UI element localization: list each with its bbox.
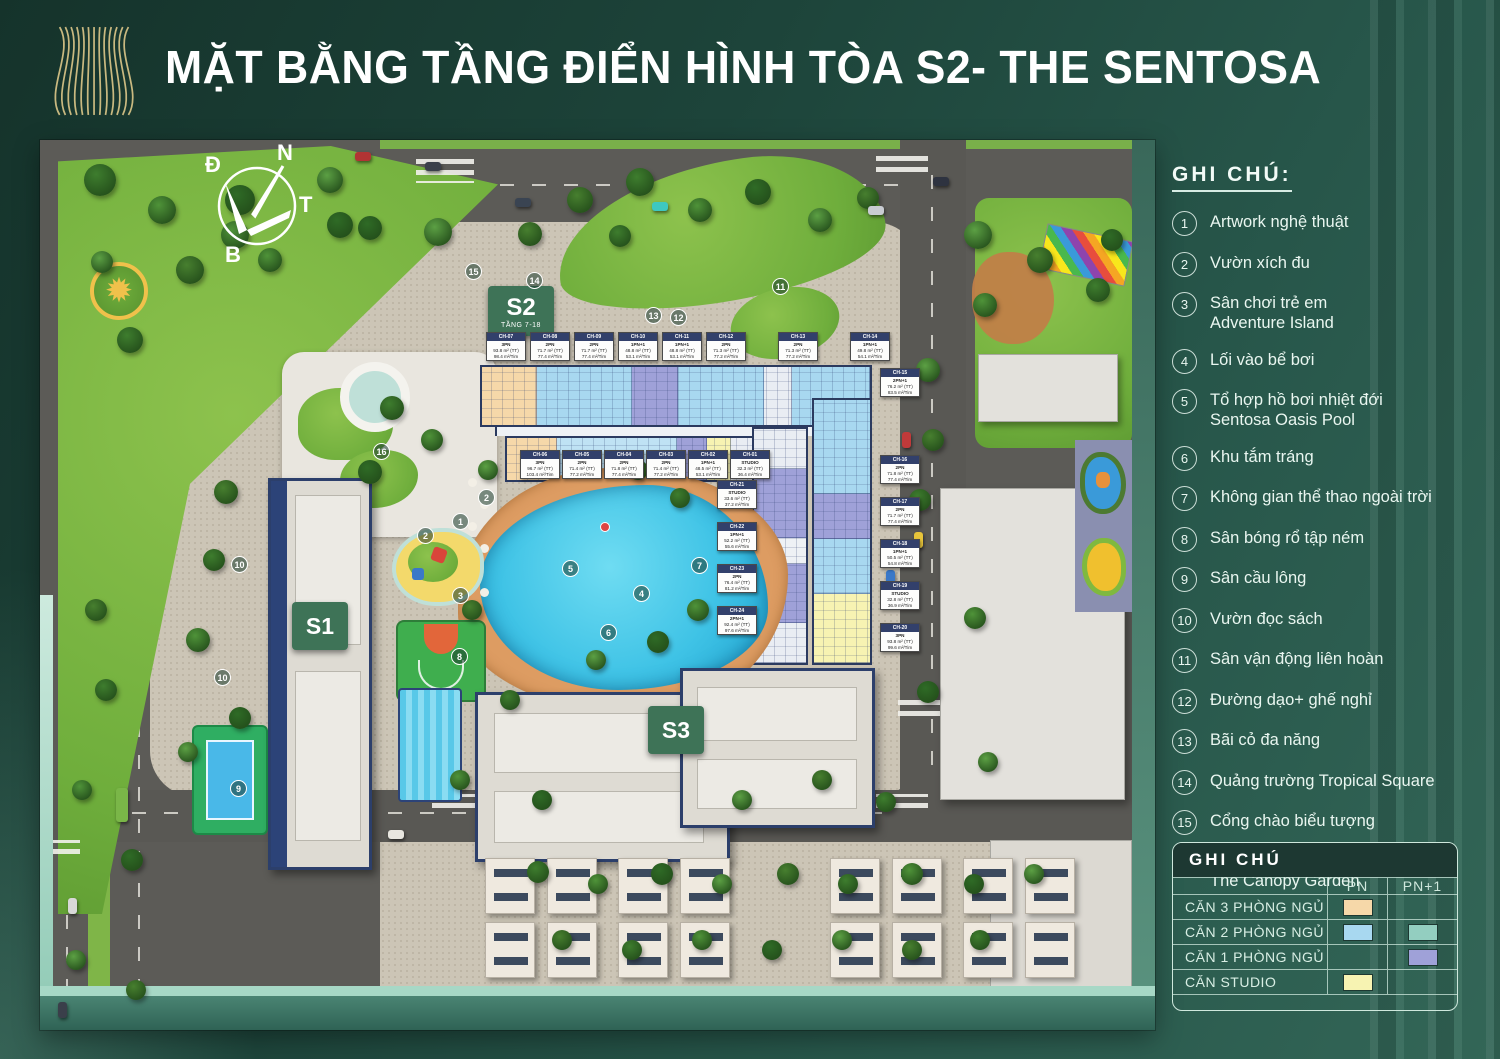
unit-card-area2: 37.2 m²/Tim [718,502,756,508]
unit-card-id: CH-24 [718,607,756,615]
tree-icon [424,218,452,246]
villa-roofline [556,957,590,965]
villa-roofline [1034,957,1068,965]
unit-card-id: CH-23 [718,565,756,573]
map-marker-5: 5 [562,560,579,577]
villa-roofline [1034,893,1068,901]
tree-icon [421,429,443,451]
unit-card-CH-05: CH-05 2PN 71.4 m² (TT) 77.2 m²/Tim [562,450,602,479]
map-marker-14: 14 [526,272,543,289]
top-grass-verge [380,140,1132,149]
villa-roofline [494,893,528,901]
villa-roofline [556,893,590,901]
legend-label: Vườn xích đu [1210,251,1310,274]
unit-card-CH-01: CH-01 STUDIO 32.3 m² (TT) 36.4 m²/Tim [730,450,770,479]
unit-card-type: 3PN [521,459,559,466]
tree-icon [917,681,939,703]
unit-card-area2: 54.1 m²/Tim [851,354,889,360]
legend-number: 7 [1172,486,1197,511]
legend-number: 2 [1172,252,1197,277]
map-marker-8: 8 [451,648,468,665]
parasol [480,588,489,597]
pn-cell [1327,920,1387,944]
unit-card-area2: 36.9 m²/Tim [881,603,919,609]
crosswalk [876,156,928,172]
map-marker-11: 11 [772,278,789,295]
unit-strip [814,400,870,494]
villa-roofline [972,893,1006,901]
unit-type-table: GHI CHÚ PN PN+1CĂN 3 PHÒNG NGỦCĂN 2 PHÒN… [1172,842,1458,1011]
unit-card-CH-20: CH-20 3PN 93.8 m² (TT) 99.6 m²/Tim [880,623,920,652]
legend-number: 1 [1172,211,1197,236]
compass-letter: T [299,192,312,218]
parasol [468,478,477,487]
unit-card-id: CH-10 [619,333,657,341]
unit-card-area2: 77.2 m²/Tim [563,472,601,478]
unit-card-id: CH-02 [689,451,727,459]
unit-strip [814,594,870,663]
legend-items: 1Artwork nghệ thuật2Vườn xích đu3Sân chơ… [1172,210,1472,892]
legend-item-15: 15Cổng chào biểu tượng [1172,809,1472,835]
car-icon [652,202,668,211]
map-marker-10: 10 [214,669,231,686]
unit-card-id: CH-17 [881,498,919,506]
car-icon [515,198,531,207]
tree-icon [214,480,238,504]
s1-roof [295,671,361,841]
villa-roofline [556,869,590,877]
map-marker-2: 2 [478,489,495,506]
tree-icon [500,690,520,710]
tree-icon [358,216,382,240]
car-icon [868,206,884,215]
legend-label: Sân cầu lông [1210,566,1306,589]
tree-icon [622,940,642,960]
pn-cell [1327,945,1387,969]
unit-card-area2: 83.5 m²/Tim [881,390,919,396]
unit-table-title: GHI CHÚ [1173,843,1457,877]
tree-icon [626,168,654,196]
villa [547,922,597,978]
badge-label: S2 [506,294,535,322]
unit-card-area2: 77.4 m²/Tim [605,472,643,478]
legend-label: Tổ hợp hồ bơi nhiệt đớiSentosa Oasis Poo… [1210,388,1383,430]
poster-canvas: MẶT BẰNG TẦNG ĐIỂN HÌNH TÒA S2- THE SENT… [0,0,1500,1059]
unit-card-CH-09: CH-09 2PN 71.7 m² (TT) 77.4 m²/Tim [574,332,614,361]
unit-card-id: CH-08 [531,333,569,341]
unit-card-type: 1PN+1 [619,341,657,348]
s3-building-east [680,668,875,828]
legend-number: 15 [1172,810,1197,835]
tree-icon [95,679,117,701]
compass-letter: N [277,140,293,166]
legend-item-11: 11Sân vận động liên hoàn [1172,647,1472,673]
unit-card-id: CH-07 [487,333,525,341]
tree-icon [186,628,210,652]
unit-card-area2: 99.6 m²/Tim [881,645,919,651]
legend-heading: GHI CHÚ: [1172,163,1292,192]
tree-icon [380,396,404,420]
tree-icon [745,179,771,205]
villa-roofline [494,869,528,877]
unit-card-type: 3PN [881,632,919,639]
s3-roof [697,759,857,809]
legend-label: Bãi cỏ đa năng [1210,728,1320,751]
color-swatch [1408,949,1438,966]
tree-icon [518,222,542,246]
unit-card-CH-16: CH-16 2PN 71.8 m² (TT) 77.4 m²/Tim [880,455,920,484]
tree-icon [762,940,782,960]
site-plan-map: ✹ NĐTBS2TẦNG 7-18S1S31223456789101011121… [40,140,1155,1030]
villa-roofline [901,933,935,941]
building-badge-s1: S1 [292,602,348,650]
unit-card-id: CH-16 [881,456,919,464]
tree-icon [732,790,752,810]
unit-card-id: CH-04 [605,451,643,459]
badge-label: S3 [662,717,690,744]
legend-number: 12 [1172,689,1197,714]
legend-item-13: 13Bãi cỏ đa năng [1172,728,1472,754]
unit-table-row: CĂN STUDIO [1173,969,1457,994]
tree-icon [964,221,992,249]
villa-roofline [494,933,528,941]
unit-card-type: 2PN [605,459,643,466]
page-title: MẶT BẰNG TẦNG ĐIỂN HÌNH TÒA S2- THE SENT… [165,40,1378,94]
legend-number: 3 [1172,292,1197,317]
tree-icon [651,863,673,885]
unit-card-type: 2PN [531,341,569,348]
east-playground-blob [1082,538,1126,596]
car-icon [355,152,371,161]
unit-card-area2: 77.4 m²/Tim [881,477,919,483]
tree-icon [148,196,176,224]
tree-icon [203,549,225,571]
unit-card-CH-24: CH-24 2PN+1 92.4 m² (TT) 97.6 m²/Tim [717,606,757,635]
tree-icon [229,707,251,729]
tree-icon [126,980,146,1000]
unit-card-CH-13: CH-13 2PN 71.3 m² (TT) 77.2 m²/Tim [778,332,818,361]
legend-number: 13 [1172,729,1197,754]
unit-card-id: CH-09 [575,333,613,341]
legend-item-12: 12Đường dạo+ ghế nghỉ [1172,688,1472,714]
tree-icon [532,790,552,810]
car-icon [902,432,911,448]
badge-sub-label: TẦNG 7-18 [501,322,541,329]
tree-icon [91,251,113,273]
tree-icon [358,460,382,484]
legend-item-6: 6Khu tắm tráng [1172,445,1472,471]
unit-card-id: CH-22 [718,523,756,531]
tree-icon [117,327,143,353]
tree-icon [527,861,549,883]
unit-card-area2: 54.8 m²/Tim [881,561,919,567]
tree-icon [832,930,852,950]
villa-roofline [494,957,528,965]
unit-strip [814,494,870,539]
legend-number: 4 [1172,349,1197,374]
unit-card-area2: 77.4 m²/Tim [881,519,919,525]
villa-roofline [901,893,935,901]
tree-icon [84,164,116,196]
unit-card-type: 2PN [779,341,817,348]
villa-roofline [1034,933,1068,941]
legend-number: 8 [1172,527,1197,552]
map-marker-2: 2 [417,527,434,544]
legend-item-4: 4Lối vào bể bơi [1172,348,1472,374]
tree-icon [838,874,858,894]
tree-icon [478,460,498,480]
color-swatch [1343,974,1373,991]
unit-card-type: STUDIO [718,489,756,496]
col-header-pn1: PN+1 [1387,878,1457,894]
unit-card-CH-19: CH-19 STUDIO 32.8 m² (TT) 36.9 m²/Tim [880,581,920,610]
unit-strip [814,539,870,594]
tree-icon [647,631,669,653]
legend-label: Đường dạo+ ghế nghỉ [1210,688,1372,711]
legend-label: Artwork nghệ thuật [1210,210,1349,233]
unit-card-area2: 77.2 m²/Tim [707,354,745,360]
unit-card-area2: 97.6 m²/Tim [718,628,756,634]
tree-icon [964,607,986,629]
legend-item-7: 7Không gian thể thao ngoài trời [1172,485,1472,511]
tree-icon [978,752,998,772]
tree-icon [552,930,572,950]
tree-icon [66,950,86,970]
pn1-cell [1387,945,1457,969]
unit-card-area2: 53.1 m²/Tim [663,354,701,360]
pn1-cell [1387,895,1457,919]
unit-card-id: CH-11 [663,333,701,341]
legend-item-1: 1Artwork nghệ thuật [1172,210,1472,236]
map-marker-7: 7 [691,557,708,574]
unit-card-CH-06: CH-06 3PN 96.7 m² (TT) 103.4 m²/Tim [520,450,560,479]
legend-item-14: 14Quảng trường Tropical Square [1172,769,1472,795]
legend-number: 10 [1172,608,1197,633]
tree-icon [812,770,832,790]
car-icon [58,1002,67,1018]
car-icon [388,830,404,839]
parasol [468,522,477,531]
unit-card-area2: 103.4 m²/Tim [521,472,559,478]
unit-card-area2: 77.4 m²/Tim [575,354,613,360]
tree-icon [692,930,712,950]
tree-icon [1027,247,1053,273]
tree-icon [1101,229,1123,251]
unit-card-id: CH-05 [563,451,601,459]
unit-card-id: CH-21 [718,481,756,489]
legend-label: Sân vận động liên hoàn [1210,647,1383,670]
tree-icon [121,849,143,871]
unit-card-type: 3PN [487,341,525,348]
unit-card-CH-04: CH-04 2PN 71.8 m² (TT) 77.4 m²/Tim [604,450,644,479]
legend-panel: GHI CHÚ: 1Artwork nghệ thuật2Vườn xích đ… [1172,163,1472,906]
map-marker-10: 10 [231,556,248,573]
pn1-cell [1387,970,1457,994]
unit-card-area2: 36.4 m²/Tim [731,472,769,478]
s1-building [268,478,372,870]
car-icon [425,162,441,171]
unit-card-id: CH-15 [881,369,919,377]
villa-roofline [627,893,661,901]
tree-icon [588,874,608,894]
map-marker-12: 12 [670,309,687,326]
unit-card-id: CH-06 [521,451,559,459]
map-marker-6: 6 [600,624,617,641]
unit-card-area2: 55.6 m²/Tim [718,544,756,550]
unit-card-id: CH-18 [881,540,919,548]
unit-strip [764,367,792,425]
legend-number: 5 [1172,389,1197,414]
unit-card-area2: 77.4 m²/Tim [531,354,569,360]
tree-icon [586,650,606,670]
unit-card-id: CH-12 [707,333,745,341]
legend-label: Không gian thể thao ngoài trời [1210,485,1432,508]
villa-roofline [689,893,723,901]
unit-card-type: 2PN [647,459,685,466]
villa-roofline [839,957,873,965]
color-swatch [1343,899,1373,916]
unit-card-CH-07: CH-07 3PN 93.8 m² (TT) 98.4 m²/Tim [486,332,526,361]
tree-icon [973,293,997,317]
tree-icon [712,874,732,894]
legend-label: Lối vào bể bơi [1210,348,1314,371]
compass-letter: B [225,242,241,268]
unit-card-id: CH-03 [647,451,685,459]
unit-card-type: 1PN+1 [718,531,756,538]
car-icon [933,177,949,186]
unit-card-area2: 81.2 m²/Tim [718,586,756,592]
unit-card-area2: 53.1 m²/Tim [619,354,657,360]
unit-card-CH-03: CH-03 2PN 71.4 m² (TT) 77.2 m²/Tim [646,450,686,479]
unit-card-type: 2PN [881,506,919,513]
brand-logo-icon [52,22,138,120]
unit-card-type: 2PN [575,341,613,348]
unit-strip [482,367,537,425]
unit-table-row: CĂN 3 PHÒNG NGỦ [1173,894,1457,919]
s1-edge [271,481,287,867]
play-equipment [412,568,424,580]
legend-number: 9 [1172,567,1197,592]
pn-cell [1327,895,1387,919]
pn-cell [1327,970,1387,994]
unit-card-id: CH-20 [881,624,919,632]
color-swatch [1343,924,1373,941]
map-south-border-light [40,986,1155,996]
tree-icon [902,940,922,960]
unit-table-row: CĂN 2 PHÒNG NGỦ [1173,919,1457,944]
unit-card-CH-15: CH-15 2PN+1 76.2 m² (TT) 83.5 m²/Tim [880,368,920,397]
unit-type-label: CĂN 1 PHÒNG NGỦ [1173,945,1327,969]
compass-letter: Đ [205,152,221,178]
map-marker-4: 4 [633,585,650,602]
villa [485,922,535,978]
map-south-border [40,996,1155,1030]
s3-roof [697,687,857,741]
east-road-dashes [931,165,933,765]
unit-card-type: STUDIO [881,590,919,597]
unit-card-CH-10: CH-10 1PN+1 48.8 m² (TT) 53.1 m²/Tim [618,332,658,361]
unit-type-label: CĂN 2 PHÒNG NGỦ [1173,920,1327,944]
badge-label: S1 [306,613,334,640]
unit-card-CH-02: CH-02 1PN+1 48.5 m² (TT) 53.1 m²/Tim [688,450,728,479]
legend-number: 14 [1172,770,1197,795]
unit-card-CH-23: CH-23 2PN 76.4 m² (TT) 81.2 m²/Tim [717,564,757,593]
unit-card-CH-17: CH-17 2PN 71.7 m² (TT) 77.4 m²/Tim [880,497,920,526]
tree-icon [462,600,482,620]
map-marker-1: 1 [452,513,469,530]
unit-card-type: 2PN [718,573,756,580]
map-marker-16: 16 [373,443,390,460]
map-west-border [40,595,53,1030]
unit-card-type: 1PN+1 [689,459,727,466]
pn1-cell [1387,920,1457,944]
map-marker-9: 9 [230,780,247,797]
east-playground-dot [1096,472,1110,488]
unit-card-CH-14: CH-14 1PN+1 49.8 m² (TT) 54.1 m²/Tim [850,332,890,361]
car-icon [116,788,128,822]
unit-type-label: CĂN STUDIO [1173,970,1327,994]
tree-icon [609,225,631,247]
unit-card-CH-08: CH-08 2PN 71.7 m² (TT) 77.4 m²/Tim [530,332,570,361]
unit-card-CH-12: CH-12 2PN 71.3 m² (TT) 77.2 m²/Tim [706,332,746,361]
tree-icon [901,863,923,885]
legend-number: 6 [1172,446,1197,471]
unit-card-CH-21: CH-21 STUDIO 33.6 m² (TT) 37.2 m²/Tim [717,480,757,509]
villa-roofline [972,957,1006,965]
unit-strip [678,367,764,425]
unit-card-type: 2PN+1 [718,615,756,622]
legend-item-2: 2Vườn xích đu [1172,251,1472,277]
legend-label: Vườn đọc sách [1210,607,1323,630]
unit-card-type: 1PN+1 [851,341,889,348]
legend-label: Sân bóng rổ tập ném [1210,526,1364,549]
legend-label: Sân chơi trẻ emAdventure Island [1210,291,1334,333]
unit-table-row: CĂN 1 PHÒNG NGỦ [1173,944,1457,969]
compass-icon: NĐTB [195,144,325,264]
unit-card-area2: 98.4 m²/Tim [487,354,525,360]
unit-card-area2: 77.2 m²/Tim [647,472,685,478]
villa-roofline [689,957,723,965]
unit-card-CH-11: CH-11 1PN+1 48.8 m² (TT) 53.1 m²/Tim [662,332,702,361]
legend-item-5: 5Tổ hợp hồ bơi nhiệt đớiSentosa Oasis Po… [1172,388,1472,430]
unit-card-type: STUDIO [731,459,769,466]
tree-icon [670,488,690,508]
unit-card-type: 2PN [707,341,745,348]
badminton-inner [206,740,254,820]
unit-strip [537,367,632,425]
legend-label: Quảng trường Tropical Square [1210,769,1435,792]
tree-icon [1024,864,1044,884]
car-icon [68,898,77,914]
tree-icon [450,770,470,790]
villa-roofline [839,893,873,901]
unit-card-id: CH-01 [731,451,769,459]
canopy-ring-path [340,362,410,432]
pool-feature-dot [600,522,610,532]
legend-label: Cổng chào biểu tượng [1210,809,1375,832]
map-marker-13: 13 [645,307,662,324]
legend-number: 11 [1172,648,1197,673]
villa [963,922,1013,978]
color-swatch [1408,924,1438,941]
unit-type-label: CĂN 3 PHÒNG NGỦ [1173,895,1327,919]
tree-icon [808,208,832,232]
tree-icon [922,429,944,451]
villa [1025,922,1075,978]
tree-icon [85,599,107,621]
unit-card-CH-22: CH-22 1PN+1 52.2 m² (TT) 55.6 m²/Tim [717,522,757,551]
tree-icon [970,930,990,950]
